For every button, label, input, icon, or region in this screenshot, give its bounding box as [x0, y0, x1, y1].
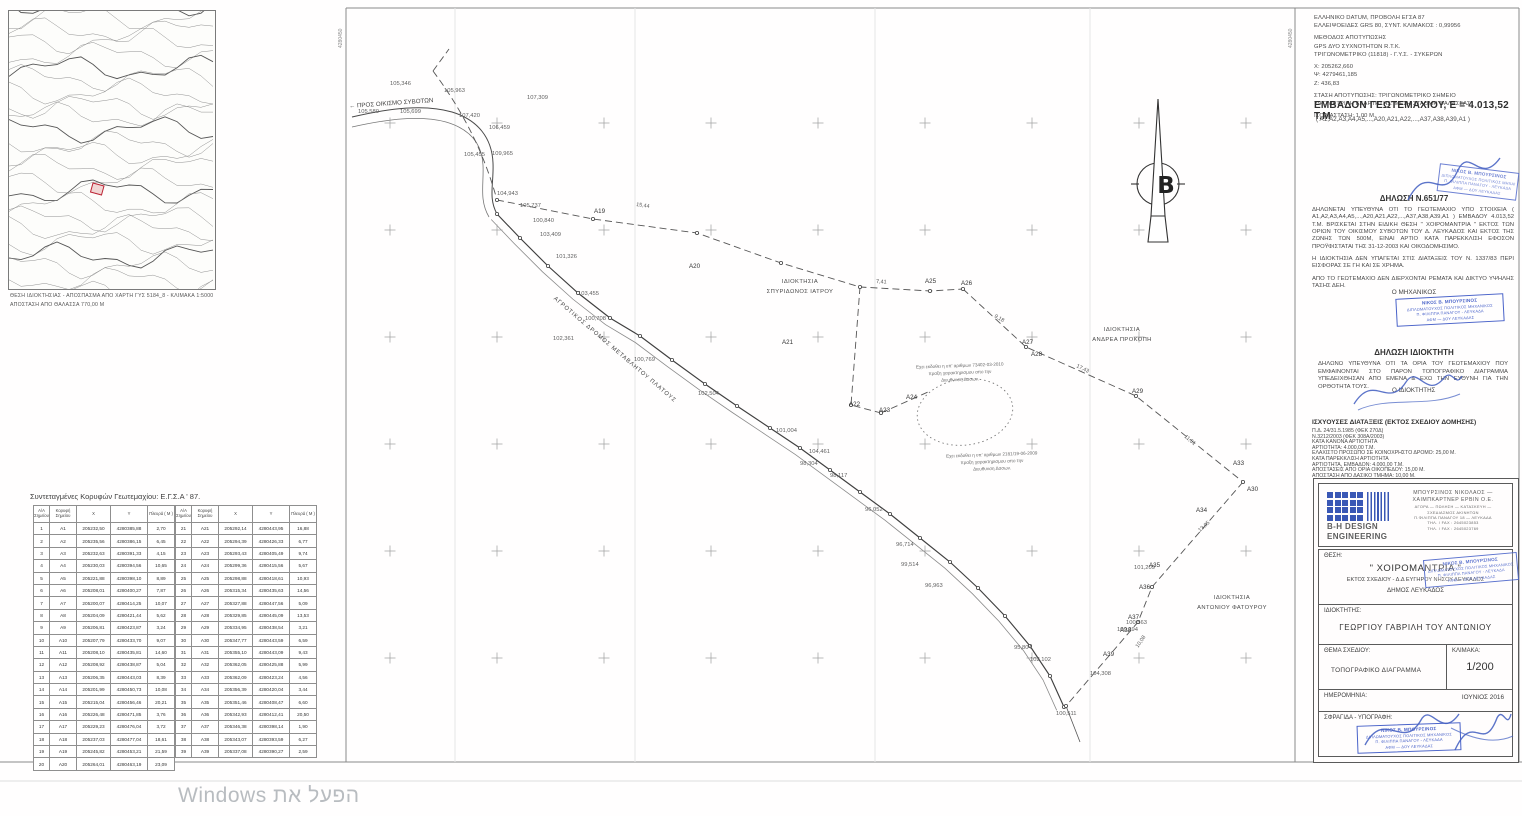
coord-row: 4Α4205230,034280394,5610,65 [34, 560, 175, 572]
scale-value: 1/200 [1447, 661, 1513, 673]
vertex-label: Α36 [1139, 584, 1151, 591]
vertex-label: Α37 [1128, 614, 1140, 621]
subject-label: ΘΕΜΑ ΣΧΕΔΙΟΥ: [1324, 648, 1370, 654]
company-logo-icon [1327, 492, 1363, 521]
elevation-label: 104,308 [1090, 671, 1111, 677]
inset-caption-line2: ΑΠΟΣΤΑΣΗ ΑΠΟ ΘΑΛΑΣΣΑ 770,00 Μ [10, 302, 104, 308]
company-details: ΜΠΟΥΡΣΙΝΟΣ ΝΙΚΟΛΑΟΣ —ΧΑΙΜΠΚΑΡΤΝΕΡ ΕΡΒΙΝ … [1397, 490, 1509, 531]
elevation-label: 96,714 [896, 542, 915, 548]
forest-act-note: Εχει εκδοθει η υπ' αριθμων 2181/19-06-20… [930, 450, 1055, 475]
grid-coordinate-label: 4280450 [338, 28, 344, 48]
forest-act-note: Εχει εκδοθει η υπ' αριθμων 73402-03-2010… [898, 361, 1023, 386]
distance-label: 11,51 [1183, 434, 1197, 447]
elevation-label: 106,459 [489, 125, 510, 131]
survey-point-marker [703, 382, 706, 385]
distance-label: 7,41 [876, 279, 887, 286]
elevation-label: 102,504 [698, 391, 720, 397]
coord-row: 35Α35205351,464280408,476,60 [176, 696, 317, 708]
elevation-label: 107,420 [459, 113, 480, 119]
survey-point-marker [858, 490, 861, 493]
coord-row: 30Α30205347,774280443,596,59 [176, 634, 317, 646]
brand-line2: ENGINEERING [1327, 532, 1387, 541]
coord-row: 1Α1205232,504280385,882,70 [34, 523, 175, 535]
vertex-label: Α20 [689, 263, 701, 270]
elevation-label: 102,102 [1030, 657, 1051, 663]
company-name-line: ΧΑΙΜΠΚΑΡΤΝΕΡ ΕΡΒΙΝ Ο.Ε. [1397, 497, 1509, 504]
coord-row: 9Α9205206,814280423,873,24 [34, 622, 175, 634]
title-block: B-H DESIGN ENGINEERING ΜΠΟΥΡΣΙΝΟΣ ΝΙΚΟΛΑ… [1313, 478, 1519, 763]
coord-col-header: Α/Α Σημείου [176, 506, 192, 523]
elevation-label: 103,455 [578, 291, 599, 297]
owner-declaration-title: ΔΗΛΩΣΗ ΙΔΙΟΚΤΗΤΗ [1312, 348, 1516, 357]
grid-coordinate-label: 4280450 [1288, 28, 1294, 48]
engineer-stamp: ΝΙΚΟΣ Β. ΜΠΟΥΡΣΙΝΟΣΔΙΠΛΩΜΑΤΟΥΧΟΣ ΠΟΛΙΤΙΚ… [1357, 722, 1462, 754]
coordinates-table: Α/Α ΣημείουΚορυφή ΣημείουΧΥΠλευρά ( Μ )1… [33, 505, 317, 771]
adjacent-owner-label: ΙΔΙΟΚΤΗΣΙΑΣΠΥΡΙΔΩΝΟΣ ΙΑΤΡΟΥ [767, 278, 834, 298]
vertex-label: Α19 [594, 208, 606, 215]
elevation-label: 105,737 [520, 203, 541, 209]
declaration-paragraph: ΑΠΟ ΤΟ ΓΕΩΤΕΜΑΧΙΟ ΔΕΝ ΔΙΕΡΧΟΝΤΑΙ ΡΕΜΑΤΑ … [1312, 276, 1514, 291]
coord-row: 34Α34205356,394280420,043,44 [176, 684, 317, 696]
coord-row: 21Α21205292,144280443,9516,88 [176, 523, 317, 535]
field-stamp-signature: ΣΦΡΑΓΙΔΑ - ΥΠΟΓΡΑΦΗ: ΝΙΚΟΣ Β. ΜΠΟΥΡΣΙΝΟΣ… [1319, 712, 1512, 756]
elevation-label: 105,346 [390, 81, 411, 87]
field-scale: ΚΛΙΜΑΚΑ: 1/200 [1446, 645, 1513, 689]
vertex-label: Α35 [1149, 562, 1161, 569]
survey-point-marker [591, 217, 594, 220]
survey-point-marker [1241, 480, 1244, 483]
declaration-paragraph: ΔΗΛΩΝΕΤΑΙ ΥΠΕΥΘΥΝΑ ΟΤΙ ΤΟ ΓΕΩΤΕΜΑΧΙΟ ΥΠΟ… [1312, 207, 1514, 251]
contour-lines [9, 11, 213, 289]
survey-point-marker [888, 512, 891, 515]
coord-col-header: Α/Α Σημείου [34, 506, 50, 523]
coordinates-table-title: Συντεταγμένες Κορυφών Γεωτεμαχίου: Ε.Γ.Σ… [30, 492, 200, 501]
elevation-label: 96,963 [925, 583, 943, 589]
elevation-label: 95,804 [1014, 645, 1033, 651]
survey-info-line: ΜΕΘΟΔΟΣ ΑΠΟΤΥΠΩΣΗΣ [1314, 34, 1506, 42]
elevation-label: 98,304 [800, 461, 819, 467]
survey-point-marker [495, 198, 498, 201]
coord-row: 27Α27205327,884280447,565,09 [176, 597, 317, 609]
elevation-label: 109,965 [492, 151, 513, 157]
survey-point-marker [1048, 674, 1051, 677]
elevation-label: 104,461 [809, 449, 830, 455]
survey-point-marker [828, 468, 831, 471]
inset-caption-line1: ΘΕΣΗ ΙΔΙΟΚΤΗΣΙΑΣ - ΑΠΟΣΠΑΣΜΑ ΑΠΟ ΧΑΡΤΗ Γ… [10, 293, 213, 299]
elevation-label: 105,455 [464, 152, 485, 158]
vertex-label: Α39 [1103, 651, 1115, 658]
adjacent-owner-label: ΙΔΙΟΚΤΗΣΙΑΑΝΔΡΕΑ ΠΡΟΚΟΠΗ [1092, 326, 1152, 346]
survey-info-line: ΕΛΛΗΝΙΚΟ DATUM, ΠΡΟΒΟΛΗ ΕΓΣΑ 87 [1314, 14, 1506, 22]
elevation-label: 100,769 [634, 357, 655, 363]
survey-point-marker [695, 231, 698, 234]
coord-row: 33Α33205362,094280423,244,56 [176, 671, 317, 683]
coordinates-table-left: Α/Α ΣημείουΚορυφή ΣημείουΧΥΠλευρά ( Μ )1… [33, 505, 175, 771]
coord-row: 22Α22205294,394280426,336,77 [176, 535, 317, 547]
drawing-labels: 105,346105,963107,309105,580105,699107,4… [338, 28, 1294, 717]
location-value3: ΔΗΜΟΣ ΛΕΥΚΑΔΟΣ [1319, 587, 1512, 594]
subject-value: ΤΟΠΟΓΡΑΦΙΚΟ ΔΙΑΓΡΑΜΜΑ [1331, 667, 1421, 674]
activate-windows-watermark: הפעל את Windows [178, 784, 360, 808]
survey-point-marker [670, 358, 673, 361]
coord-row: 19Α19205245,824280453,2121,59 [34, 746, 175, 758]
vertex-label: Α25 [925, 278, 937, 285]
coord-row: 20Α20205264,014280463,1923,09 [34, 758, 175, 770]
vertex-label: Α21 [782, 339, 794, 346]
survey-point-marker [495, 212, 498, 215]
coordinates-table-right: Α/Α ΣημείουΚορυφή ΣημείουΧΥΠλευρά ( Μ )2… [175, 505, 317, 758]
elevation-label: 102,361 [553, 336, 574, 342]
provisions-title: ΙΣΧΥΟΥΣΕΣ ΔΙΑΤΑΞΕΙΣ (ΕΚΤΟΣ ΣΧΕΔΙΟΥ ΔΟΜΗΣ… [1312, 419, 1516, 426]
grid-crosses [385, 118, 1252, 664]
coord-row: 10Α10205207,794280433,709,07 [34, 634, 175, 646]
coord-row: 7Α7205200,074280414,2510,07 [34, 597, 175, 609]
distance-label: 10,08 [1135, 635, 1148, 650]
coord-row: 12Α12205208,924280438,875,04 [34, 659, 175, 671]
brand-line1: B-H DESIGN [1327, 522, 1378, 531]
coord-row: 18Α18205237,034280477,0418,61 [34, 733, 175, 745]
survey-info-line: ΣΤΑΣΗ ΑΠΟΤΥΠΩΣΗΣ: ΤΡΙΓΩΝΟΜΕΤΡΙΚΟ ΣΗΜΕΙΟ [1314, 92, 1506, 100]
survey-point-marker [638, 334, 641, 337]
fold-marks [455, 8, 1090, 762]
company-header: B-H DESIGN ENGINEERING ΜΠΟΥΡΣΙΝΟΣ ΝΙΚΟΛΑ… [1318, 483, 1513, 547]
vertex-label: Α26 [961, 280, 973, 287]
survey-point-marker [1003, 614, 1006, 617]
survey-point-marker [961, 287, 964, 290]
field-date: ΗΜΕΡΟΜΗΝΙΑ: ΙΟΥΝΙΟΣ 2016 [1319, 690, 1512, 712]
location-label: ΘΕΣΗ: [1324, 553, 1342, 559]
distance-label: 17,43 [1075, 363, 1090, 374]
owner-value: ΓΕΩΡΓΙΟΥ ΓΑΒΡΙΛΗ ΤΟΥ ΑΝΤΩΝΙΟΥ [1319, 623, 1512, 632]
survey-point-marker [858, 285, 861, 288]
survey-point-marker [735, 404, 738, 407]
company-name-line: ΜΠΟΥΡΣΙΝΟΣ ΝΙΚΟΛΑΟΣ — [1397, 490, 1509, 497]
coord-row: 32Α32205362,054280425,885,99 [176, 659, 317, 671]
coord-row: 36Α36205342,934280412,4120,50 [176, 708, 317, 720]
coord-row: 13Α13205206,354280443,038,39 [34, 671, 175, 683]
coord-row: 16Α16205226,484280471,853,76 [34, 708, 175, 720]
coord-row: 11Α11205208,104280435,8114,60 [34, 646, 175, 658]
elevation-label: 101,326 [556, 254, 577, 260]
coord-col-header: Πλευρά ( Μ ) [148, 506, 175, 523]
coord-row: 37Α37205346,384280398,141,90 [176, 721, 317, 733]
survey-info-line: ΤΡΙΓΩΝΟΜΕΤΡΙΚΟ (11818) - Γ.Υ.Σ. - ΣΥΚΕΡΩ… [1314, 51, 1506, 59]
survey-point-marker [608, 316, 611, 319]
coord-row: 5Α5205221,884280398,108,89 [34, 572, 175, 584]
coord-col-header: Χ [219, 506, 253, 523]
coord-col-header: Υ [253, 506, 290, 523]
coord-row: 14Α14205201,994280450,7310,08 [34, 684, 175, 696]
elevation-label: 104,943 [497, 191, 518, 197]
adjacent-owner-label: ΙΔΙΟΚΤΗΣΙΑΑΝΤΩΝΙΟΥ ΦΑΤΟΥΡΟΥ [1197, 594, 1267, 614]
coord-row: 29Α29205334,954280438,543,21 [176, 622, 317, 634]
parcel-area-vertices: ( Α1,Α2,Α3,Α4,Α5,...,Α20,Α21,Α22,...,Α37… [1316, 116, 1516, 123]
survey-point-marker [768, 426, 771, 429]
coord-row: 8Α8205204,094280421,445,62 [34, 609, 175, 621]
scale-label: ΚΛΙΜΑΚΑ: [1452, 648, 1480, 654]
survey-info-line: GPS ΔΥΟ ΣΥΧΝΟΤΗΤΩΝ R.T.K. [1314, 43, 1506, 51]
survey-point-marker [976, 586, 979, 589]
topographic-survey-sheet: Β 105,346105,963107,309105,580105,699107… [0, 0, 1522, 816]
stamp-label: ΣΦΡΑΓΙΔΑ - ΥΠΟΓΡΑΦΗ: [1324, 715, 1392, 721]
coord-row: 3Α3205232,634280391,334,15 [34, 547, 175, 559]
vertex-label: Α38 [1120, 627, 1132, 634]
declaration-651-body: ΔΗΛΩΝΕΤΑΙ ΥΠΕΥΘΥΝΑ ΟΤΙ ΤΟ ΓΕΩΤΕΜΑΧΙΟ ΥΠΟ… [1312, 207, 1514, 295]
elevation-label: 100,840 [533, 218, 554, 224]
parcel-boundary-dashed [433, 49, 1243, 742]
survey-point-marker [948, 560, 951, 563]
elevation-label: 105,963 [444, 88, 465, 94]
coord-row: 39Α39205337,084280390,272,59 [176, 746, 317, 758]
north-letter: Β [1157, 173, 1175, 199]
field-owner: ΙΔΙΟΚΤΗΤΗΣ: ΓΕΩΡΓΙΟΥ ΓΑΒΡΙΛΗ ΤΟΥ ΑΝΤΩΝΙΟ… [1319, 605, 1512, 645]
coord-row: 24Α24205299,364280415,565,67 [176, 560, 317, 572]
coord-row: 6Α6205208,014280400,277,87 [34, 584, 175, 596]
vertex-label: Α24 [906, 394, 918, 401]
coord-row: 31Α31205355,104280443,099,43 [176, 646, 317, 658]
coord-row: 15Α15205215,044280456,4620,21 [34, 696, 175, 708]
coord-row: 2Α2205235,564280386,156,45 [34, 535, 175, 547]
survey-info-line: Z: 436,83 [1314, 80, 1506, 88]
elevation-label: 105,699 [400, 109, 421, 115]
elevation-label: 96,052 [865, 507, 883, 513]
company-detail-line: ΤΗΛ. / FAX : 2645023769 [1397, 526, 1509, 531]
engineer-stamp: ΝΙΚΟΣ Β. ΜΠΟΥΡΣΙΝΟΣΔΙΠΛΩΜΑΤΟΥΧΟΣ ΠΟΛΙΤΙΚ… [1395, 293, 1504, 327]
survey-point-marker [798, 446, 801, 449]
field-subject: ΘΕΜΑ ΣΧΕΔΙΟΥ: ΤΟΠΟΓΡΑΦΙΚΟ ΔΙΑΓΡΑΜΜΑ ΚΛΙΜ… [1319, 645, 1512, 690]
road-to-syvota [352, 108, 497, 217]
survey-point-marker [546, 264, 549, 267]
coord-row: 17Α17205229,234280476,043,72 [34, 721, 175, 733]
date-label: ΗΜΕΡΟΜΗΝΙΑ: [1324, 693, 1367, 699]
elevation-label: 99,514 [901, 562, 920, 568]
date-value: ΙΟΥΝΙΟΣ 2016 [1462, 694, 1504, 701]
elevation-label: 100,511 [1056, 711, 1077, 717]
parcel-location-marker [91, 183, 105, 195]
vertex-label: Α28 [1031, 351, 1043, 358]
survey-point-marker [918, 536, 921, 539]
vertex-label: Α30 [1247, 486, 1259, 493]
vertex-label: Α34 [1196, 507, 1208, 514]
company-logo-stripes [1367, 492, 1389, 521]
coord-row: 25Α25205298,884280418,6110,93 [176, 572, 317, 584]
provisions-body: Π.Δ. 24/31.5.1985 (ΦΕΚ 270Δ)Ν.3212/2003 … [1312, 429, 1516, 479]
owner-signer-label: Ο ΙΔΙΟΚΤΗΤΗΣ [1392, 387, 1435, 394]
coord-row: 23Α23205293,434280405,499,74 [176, 547, 317, 559]
coord-col-header: Κορυφή Σημείου [192, 506, 219, 523]
survey-point-marker [779, 261, 782, 264]
coord-row: 26Α26205315,344280435,6314,56 [176, 584, 317, 596]
elevation-label: 103,409 [540, 232, 561, 238]
coord-col-header: Χ [77, 506, 111, 523]
survey-point-marker [518, 236, 521, 239]
survey-point-marker [1150, 585, 1153, 588]
survey-info-line: Ψ: 4279461,185 [1314, 71, 1506, 79]
elevation-label: 98,117 [830, 473, 847, 479]
elevation-label: 107,309 [527, 95, 548, 101]
vertex-label: Α27 [1022, 339, 1034, 346]
distance-label: 15,44 [636, 202, 650, 210]
coord-col-header: Υ [111, 506, 148, 523]
inset-location-map [8, 10, 216, 290]
vertex-label: Α29 [1132, 388, 1144, 395]
vertex-label: Α22 [849, 401, 861, 408]
owner-label: ΙΔΙΟΚΤΗΤΗΣ: [1324, 608, 1361, 614]
survey-info-line: X: 205262,660 [1314, 63, 1506, 71]
survey-point-marker [928, 289, 931, 292]
vertex-label: Α23 [879, 407, 891, 414]
coord-row: 38Α38205343,074280393,596,27 [176, 733, 317, 745]
elevation-label: 105,580 [358, 109, 379, 115]
coord-col-header: Πλευρά ( Μ ) [290, 506, 317, 523]
elevation-label: 101,004 [776, 428, 798, 434]
coord-row: 28Α28205329,854280445,0913,53 [176, 609, 317, 621]
vertex-label: Α33 [1233, 460, 1245, 467]
survey-point-marker [1064, 704, 1067, 707]
distance-label: 13,05 [1197, 520, 1211, 533]
declaration-paragraph: Η ΙΔΙΟΚΤΗΣΙΑ ΔΕΝ ΥΠΑΓΕΤΑΙ ΣΤΙΣ ΔΙΑΤΑΞΕΙΣ… [1312, 256, 1514, 271]
elevation-label: 100,708 [585, 316, 606, 322]
coord-col-header: Κορυφή Σημείου [50, 506, 77, 523]
survey-info-line: ΕΛΛΕΙΨΟΕΙΔΕΣ GRS 80, ΣΥΝΤ. ΚΛΙΜΑΚΟΣ : 0,… [1314, 22, 1506, 30]
